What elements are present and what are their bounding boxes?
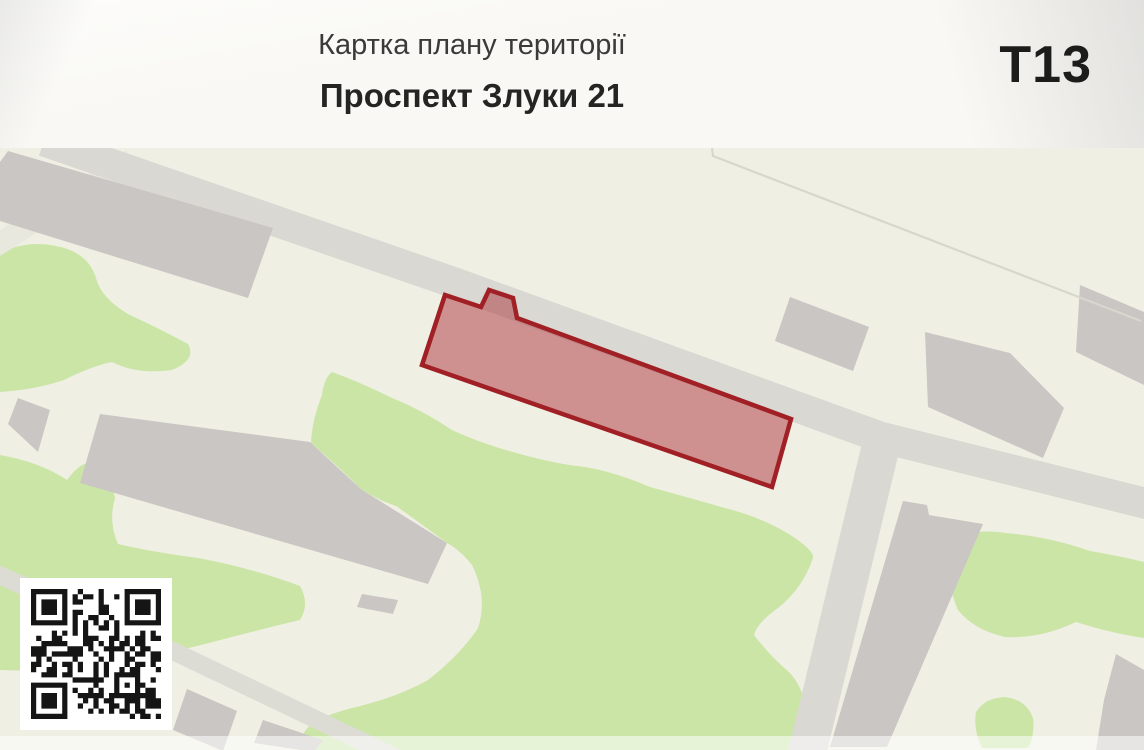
territory-map — [0, 148, 1144, 750]
card-header: Картка плану території Проспект Злуки 21… — [0, 0, 1144, 148]
bottom-fade — [0, 736, 1144, 750]
sheet-code-badge: Т13 — [999, 36, 1092, 96]
title-block: Картка плану території Проспект Злуки 21 — [0, 28, 944, 115]
address-subtitle: Проспект Злуки 21 — [0, 77, 944, 115]
territory-plan-card: Картка плану території Проспект Злуки 21… — [0, 0, 1144, 750]
page-title: Картка плану території — [0, 28, 944, 62]
map-container — [0, 148, 1144, 750]
